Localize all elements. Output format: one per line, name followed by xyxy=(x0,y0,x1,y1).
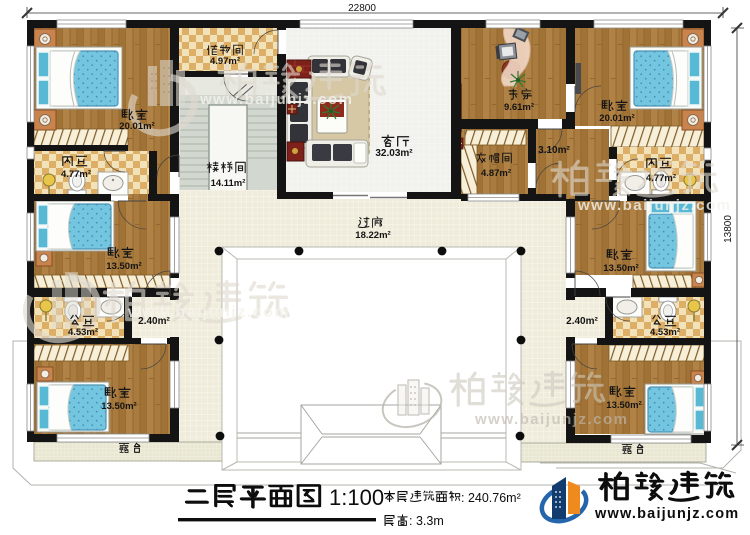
svg-text:4.53m²: 4.53m² xyxy=(650,327,680,338)
svg-text:4.77m²: 4.77m² xyxy=(61,169,91,180)
svg-text:www.baijunjz.com: www.baijunjz.com xyxy=(594,506,739,522)
svg-text:: 240.76m²: : 240.76m² xyxy=(461,491,521,505)
svg-text:2.40m²: 2.40m² xyxy=(566,316,598,327)
svg-text:4.97m²: 4.97m² xyxy=(210,56,240,67)
svg-text:20.01m²: 20.01m² xyxy=(599,113,634,124)
svg-text:9.61m²: 9.61m² xyxy=(504,102,534,113)
svg-text:2.40m²: 2.40m² xyxy=(138,316,170,327)
svg-text:4.53m²: 4.53m² xyxy=(68,327,98,338)
svg-text:13.50m²: 13.50m² xyxy=(606,400,641,411)
svg-text:: 3.3m: : 3.3m xyxy=(409,514,444,528)
svg-text:13.50m²: 13.50m² xyxy=(603,263,638,274)
svg-text:22800: 22800 xyxy=(348,3,376,14)
svg-text:3.10m²: 3.10m² xyxy=(538,145,570,156)
svg-text:13.50m²: 13.50m² xyxy=(101,401,136,412)
svg-text:1:100: 1:100 xyxy=(329,485,384,510)
svg-text:32.03m²: 32.03m² xyxy=(375,148,413,159)
svg-text:www.baijunjz.com: www.baijunjz.com xyxy=(474,411,628,428)
svg-text:4.77m²: 4.77m² xyxy=(646,173,676,184)
svg-text:13.50m²: 13.50m² xyxy=(106,261,141,272)
svg-text:20.01m²: 20.01m² xyxy=(119,121,154,132)
svg-text:www.baijunjz.com: www.baijunjz.com xyxy=(577,197,731,214)
svg-text:4.87m²: 4.87m² xyxy=(481,168,511,179)
svg-text:13800: 13800 xyxy=(723,215,734,243)
svg-text:18.22m²: 18.22m² xyxy=(355,230,390,241)
svg-text:14.11m²: 14.11m² xyxy=(211,178,246,189)
svg-text:www.baijunjz.com: www.baijunjz.com xyxy=(199,91,353,108)
